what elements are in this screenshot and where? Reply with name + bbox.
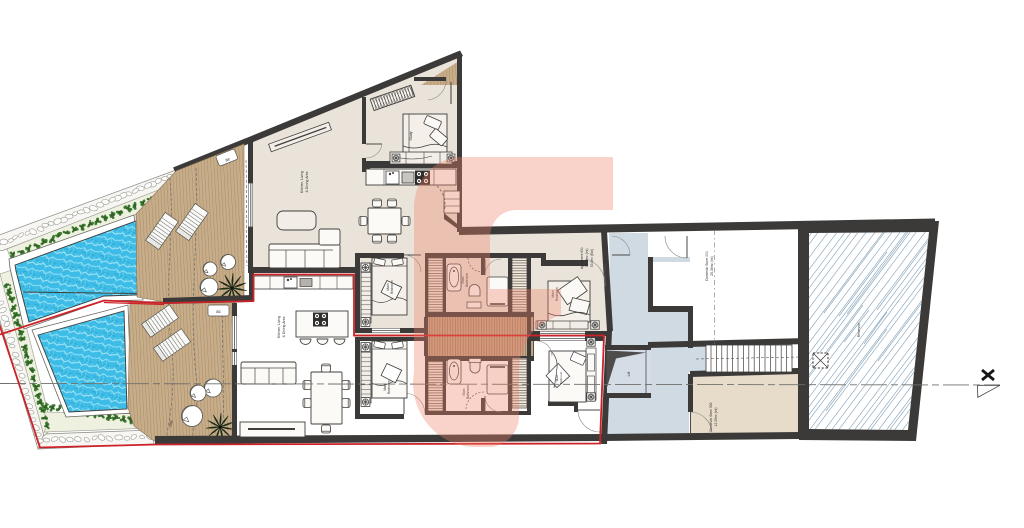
svg-text:12.30m² (Int): 12.30m² (Int) bbox=[714, 408, 718, 427]
svg-text:Domestic Store 002: Domestic Store 002 bbox=[709, 402, 713, 431]
svg-text:Bedroom: Bedroom bbox=[387, 380, 391, 394]
svg-text:Bedroom: Bedroom bbox=[559, 371, 563, 384]
svg-text:ac: ac bbox=[216, 309, 222, 314]
svg-text:74.29m² (Int): 74.29m² (Int) bbox=[585, 249, 589, 268]
svg-text:Domestic Store 001: Domestic Store 001 bbox=[705, 251, 709, 281]
svg-text:& Dining Area: & Dining Area bbox=[305, 172, 309, 193]
svg-text:Apartment 001: Apartment 001 bbox=[580, 247, 584, 269]
svg-text:& Dining Area: & Dining Area bbox=[282, 317, 286, 338]
svg-text:53.9m² (Ext): 53.9m² (Ext) bbox=[590, 249, 594, 267]
svg-text:Study: Study bbox=[409, 131, 413, 140]
svg-text:Kitchen, Living: Kitchen, Living bbox=[277, 316, 281, 338]
svg-text:Bedroom: Bedroom bbox=[390, 280, 394, 294]
svg-text:Lift: Lift bbox=[627, 372, 631, 377]
svg-text:Reservoir: Reservoir bbox=[857, 322, 861, 337]
svg-text:Kitchen, Living: Kitchen, Living bbox=[300, 171, 304, 193]
svg-text:25.36m² (Int): 25.36m² (Int) bbox=[710, 256, 714, 275]
